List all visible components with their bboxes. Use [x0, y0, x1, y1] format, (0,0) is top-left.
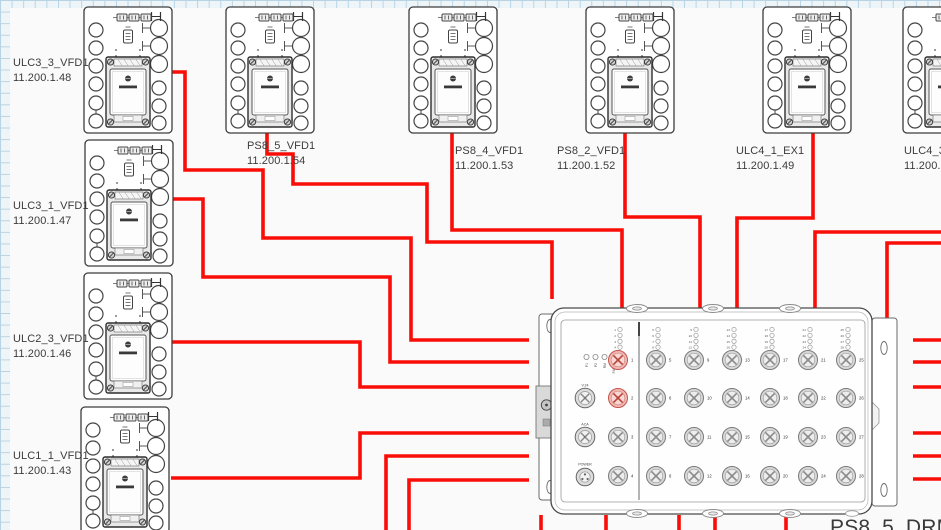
- svg-text:27: 27: [841, 340, 845, 344]
- device-name: ULC1_1_VFD1: [13, 449, 89, 464]
- svg-text:22: 22: [821, 396, 826, 401]
- svg-text:18: 18: [765, 334, 769, 338]
- ethernet-wire[interactable]: [625, 131, 700, 312]
- device-name: ULC3_1_VFD1: [13, 199, 89, 214]
- device-ulc4-1-ex1[interactable]: [762, 6, 852, 134]
- device-ip: 11.200.1.54: [247, 154, 315, 169]
- svg-text:2: 2: [614, 334, 616, 338]
- ethernet-wire[interactable]: [172, 199, 529, 362]
- svg-text:12: 12: [689, 346, 693, 350]
- svg-text:21: 21: [821, 358, 826, 363]
- device-label-ulc4-3: ULC4_3_11.200.1: [904, 144, 941, 174]
- vfd-device-graphic: [585, 6, 675, 134]
- svg-text:10: 10: [689, 334, 693, 338]
- vfd-device-graphic: [83, 272, 173, 400]
- svg-text:11: 11: [689, 340, 692, 344]
- device-label-ulc3-3-vfd1: ULC3_3_VFD111.200.1.48: [13, 56, 89, 86]
- svg-text:17: 17: [765, 328, 769, 332]
- svg-text:20: 20: [783, 474, 788, 479]
- vfd-device-graphic: [80, 406, 170, 530]
- svg-text:24: 24: [821, 474, 826, 479]
- ethernet-wire[interactable]: [409, 480, 529, 530]
- device-ip: 11.200.1.47: [13, 214, 89, 229]
- switch-ps8-5-drm1[interactable]: P1 P2 RM FAULT V.24 ACA POWER 1 2: [535, 300, 900, 518]
- device-label-ulc4-1-ex1: ULC4_1_EX111.200.1.49: [736, 144, 804, 174]
- svg-text:15: 15: [745, 435, 750, 440]
- device-ps8-5-vfd1[interactable]: [225, 6, 315, 134]
- svg-text:17: 17: [783, 358, 788, 363]
- device-ip: 11.200.1.53: [455, 159, 523, 174]
- svg-text:P1: P1: [585, 363, 589, 367]
- switch-power-port[interactable]: POWER: [576, 463, 594, 486]
- svg-text:28: 28: [841, 346, 845, 350]
- device-label-ulc3-1-vfd1: ULC3_1_VFD111.200.1.47: [13, 199, 89, 229]
- device-label-ps8-2-vfd1: PS8_2_VFD111.200.1.52: [557, 144, 625, 174]
- vfd-device-graphic: [762, 6, 852, 134]
- svg-text:28: 28: [859, 474, 864, 479]
- device-name: PS8_4_VFD1: [455, 144, 523, 159]
- device-label-ulc1-1-vfd1: ULC1_1_VFD111.200.1.43: [13, 449, 89, 479]
- svg-text:P2: P2: [594, 363, 598, 367]
- svg-text:23: 23: [821, 435, 826, 440]
- svg-text:23: 23: [803, 340, 807, 344]
- device-name: ULC4_1_EX1: [736, 144, 804, 159]
- svg-text:ACA: ACA: [581, 423, 589, 427]
- device-ulc2-3-vfd1[interactable]: [83, 272, 173, 400]
- diagram-canvas: ULC3_3_VFD111.200.1.48: [0, 0, 941, 530]
- svg-text:16: 16: [745, 474, 750, 479]
- device-ulc1-1-vfd1[interactable]: [80, 406, 170, 530]
- device-ip: 11.200.1: [904, 159, 941, 174]
- device-ip: 11.200.1.52: [557, 159, 625, 174]
- device-label-ulc2-3-vfd1: ULC2_3_VFD111.200.1.46: [13, 332, 89, 362]
- vfd-device-graphic: [225, 6, 315, 134]
- svg-text:13: 13: [727, 328, 731, 332]
- device-ip: 11.200.1.46: [13, 347, 89, 362]
- svg-text:21: 21: [803, 328, 807, 332]
- svg-text:27: 27: [859, 435, 864, 440]
- vfd-device-graphic: [902, 6, 941, 134]
- device-ip: 11.200.1.48: [13, 71, 89, 86]
- vfd-device-graphic: [408, 6, 498, 134]
- svg-text:20: 20: [765, 346, 769, 350]
- svg-text:22: 22: [803, 334, 807, 338]
- svg-text:5: 5: [652, 328, 654, 332]
- svg-text:11: 11: [707, 435, 712, 440]
- svg-text:26: 26: [841, 334, 845, 338]
- svg-text:V.24: V.24: [581, 384, 588, 388]
- svg-text:16: 16: [727, 346, 731, 350]
- device-name: ULC3_3_VFD1: [13, 56, 89, 71]
- svg-text:8: 8: [652, 346, 654, 350]
- svg-text:18: 18: [783, 396, 788, 401]
- vfd-device-graphic: [83, 6, 173, 134]
- device-name: ULC2_3_VFD1: [13, 332, 89, 347]
- device-ip: 11.200.1.49: [736, 159, 804, 174]
- svg-text:RM: RM: [603, 363, 607, 368]
- device-name: PS8_5_VFD1: [247, 139, 315, 154]
- device-label-ps8-5-vfd1: PS8_5_VFD111.200.1.54: [247, 139, 315, 169]
- device-ps8-4-vfd1[interactable]: [408, 6, 498, 134]
- svg-text:14: 14: [727, 334, 731, 338]
- svg-text:25: 25: [841, 328, 845, 332]
- device-name: PS8_2_VFD1: [557, 144, 625, 159]
- vfd-device-graphic: [84, 139, 174, 267]
- svg-text:3: 3: [614, 340, 616, 344]
- svg-text:19: 19: [783, 435, 788, 440]
- svg-text:POWER: POWER: [578, 463, 592, 467]
- device-ulc4-3[interactable]: [902, 6, 941, 134]
- svg-text:10: 10: [707, 396, 712, 401]
- device-label-ps8-4-vfd1: PS8_4_VFD111.200.1.53: [455, 144, 523, 174]
- svg-text:1: 1: [614, 328, 616, 332]
- svg-text:14: 14: [745, 396, 750, 401]
- svg-text:7: 7: [652, 340, 654, 344]
- device-ip: 11.200.1.43: [13, 464, 89, 479]
- svg-text:24: 24: [803, 346, 807, 350]
- switch-graphic: P1 P2 RM FAULT V.24 ACA POWER 1 2: [535, 300, 900, 518]
- device-ps8-2-vfd1[interactable]: [585, 6, 675, 134]
- svg-text:25: 25: [859, 358, 864, 363]
- switch-right-bracket: [872, 318, 897, 506]
- device-name: ULC4_3_: [904, 144, 941, 159]
- svg-text:13: 13: [745, 358, 750, 363]
- device-ulc3-3-vfd1[interactable]: [83, 6, 173, 134]
- device-ulc3-1-vfd1[interactable]: [84, 139, 174, 267]
- svg-text:15: 15: [727, 340, 731, 344]
- svg-text:12: 12: [707, 474, 712, 479]
- switch-label: PS8_5_DRM1: [830, 516, 941, 530]
- svg-text:26: 26: [859, 396, 864, 401]
- ethernet-wire[interactable]: [171, 342, 529, 387]
- svg-text:19: 19: [765, 340, 769, 344]
- svg-text:9: 9: [690, 328, 692, 332]
- svg-text:4: 4: [614, 346, 616, 350]
- svg-text:6: 6: [652, 334, 654, 338]
